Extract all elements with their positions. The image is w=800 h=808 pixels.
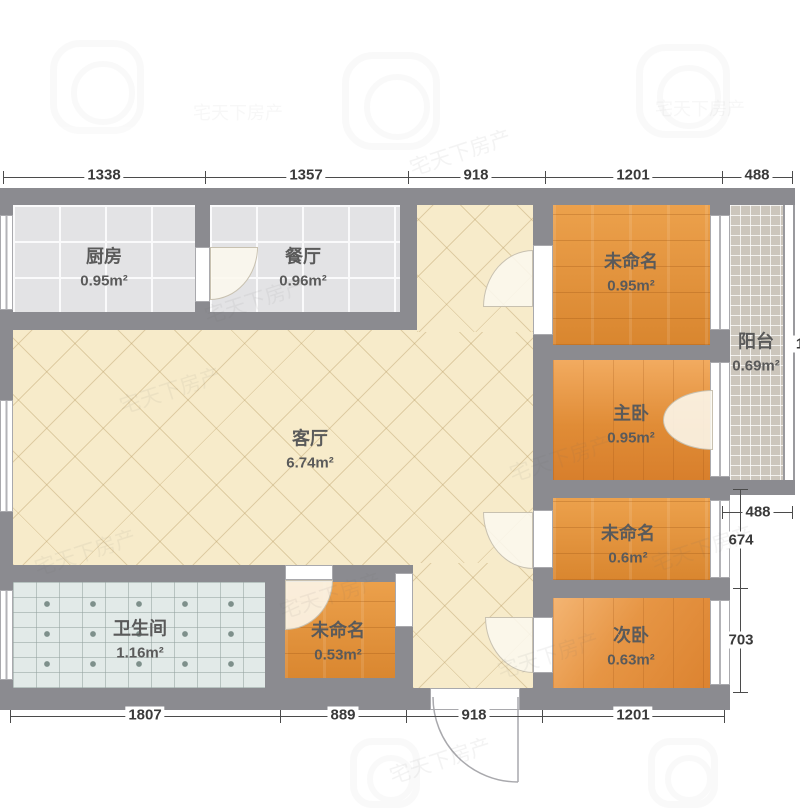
- dimension-label: 674: [725, 532, 756, 549]
- dimension-label: 889: [327, 707, 358, 724]
- wall-under-master: [533, 480, 730, 498]
- room-name: 未命名: [311, 617, 365, 644]
- room-area: 0.69m²: [732, 355, 780, 378]
- door-opening-master-balcony: [710, 362, 730, 477]
- wall-room-bottom-left: [265, 565, 285, 688]
- dimension-label: 488: [742, 504, 773, 521]
- label-kitchen: 厨房 0.95m²: [80, 243, 128, 293]
- dimension-label: 1807: [125, 707, 164, 724]
- window-living: [0, 400, 13, 512]
- dimension-label: 918: [458, 707, 489, 724]
- wall-under-room-top: [533, 345, 730, 360]
- room-name: 主卧: [607, 400, 655, 427]
- watermark-text: 宅天下房产: [193, 99, 283, 125]
- room-area: 0.63m²: [607, 649, 655, 672]
- label-master: 主卧 0.95m²: [607, 400, 655, 450]
- watermark-logo: [350, 738, 420, 808]
- door-opening-room-bottom: [285, 565, 333, 580]
- room-name: 次卧: [607, 622, 655, 649]
- wall-under-room-mid: [533, 580, 730, 598]
- dimension-label: 1201: [613, 707, 652, 724]
- opening-room-bottom-right: [395, 573, 413, 627]
- room-name: 未命名: [604, 248, 658, 275]
- watermark-text: 宅天下房产: [655, 95, 745, 121]
- dimension-label-clipped: 1: [793, 336, 800, 353]
- label-dining: 餐厅 0.96m²: [279, 243, 327, 293]
- door-opening-kitchen-dining: [195, 247, 210, 302]
- window-room-top: [710, 215, 730, 330]
- label-living: 客厅 6.74m²: [286, 425, 334, 475]
- dimension-tick: [724, 710, 725, 723]
- dimension-tick: [733, 588, 748, 589]
- floor-plan-page: { "plan": { "rooms": { "kitchen": {"name…: [0, 0, 800, 800]
- dimension-tick: [722, 506, 723, 519]
- window-bathroom: [0, 590, 13, 680]
- dimension-tick: [3, 171, 4, 184]
- room-area: 6.74m²: [286, 452, 334, 475]
- label-balcony: 阳台 0.69m²: [732, 328, 780, 378]
- wall-balcony-bottom: [722, 480, 795, 495]
- room-area: 0.96m²: [279, 270, 327, 293]
- room-name: 阳台: [732, 328, 780, 355]
- dimension-tick: [406, 710, 407, 723]
- dimension-label: 703: [725, 632, 756, 649]
- room-area: 0.95m²: [604, 275, 658, 298]
- watermark-logo: [636, 44, 730, 138]
- watermark-logo: [342, 52, 440, 150]
- room-area: 0.53m²: [311, 644, 365, 667]
- dimension-tick: [792, 506, 793, 519]
- dimension-label: 1201: [613, 167, 652, 184]
- dimension-tick: [280, 710, 281, 723]
- dimension-label: 1338: [84, 167, 123, 184]
- dimension-tick: [542, 710, 543, 723]
- wall-under-room-bottom: [265, 678, 413, 690]
- label-bedroom2: 次卧 0.63m²: [607, 622, 655, 672]
- room-area: 0.95m²: [607, 427, 655, 450]
- room-name: 客厅: [286, 425, 334, 452]
- label-room-bottom: 未命名 0.53m²: [311, 617, 365, 667]
- room-name: 卫生间: [113, 615, 167, 642]
- wall-under-kitchen: [0, 312, 417, 330]
- room-name: 未命名: [601, 520, 655, 547]
- door-opening-room-mid: [533, 510, 553, 568]
- room-name: 厨房: [80, 243, 128, 270]
- dimension-line-right-vertical: [740, 489, 741, 693]
- dimension-tick: [722, 171, 723, 184]
- window-kitchen: [0, 215, 13, 310]
- label-room-top: 未命名 0.95m²: [604, 248, 658, 298]
- dimension-label: 488: [741, 167, 772, 184]
- dimension-label: 918: [460, 167, 491, 184]
- dimension-tick: [205, 171, 206, 184]
- dimension-tick: [408, 171, 409, 184]
- room-living-floor-main: [13, 330, 533, 565]
- dimension-tick: [733, 489, 748, 490]
- room-name: 餐厅: [279, 243, 327, 270]
- dimension-label: 1357: [286, 167, 325, 184]
- watermark-logo: [648, 738, 718, 808]
- room-area: 0.95m²: [80, 270, 128, 293]
- room-area: 0.6m²: [601, 547, 655, 570]
- watermark-logo: [50, 40, 144, 134]
- label-bathroom: 卫生间 1.16m²: [113, 615, 167, 665]
- wall-dining-right: [400, 205, 417, 330]
- dimension-tick: [733, 692, 748, 693]
- dimension-tick: [792, 171, 793, 184]
- wall-bathroom-top: [0, 565, 413, 582]
- door-opening-bedroom2: [533, 617, 553, 673]
- dimension-tick: [10, 710, 11, 723]
- door-opening-room-top: [533, 245, 553, 335]
- label-room-mid: 未命名 0.6m²: [601, 520, 655, 570]
- wall-top: [0, 188, 795, 205]
- room-area: 1.16m²: [113, 642, 167, 665]
- dimension-tick: [545, 171, 546, 184]
